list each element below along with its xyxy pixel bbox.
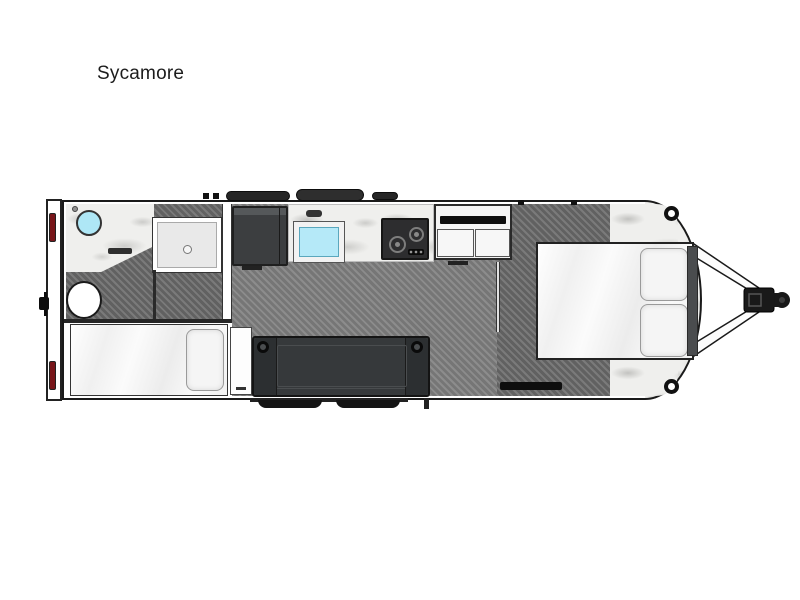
a-frame-hitch [688, 238, 798, 362]
roof-mark-icon [213, 193, 219, 199]
roof-vent [226, 191, 290, 201]
pillow [186, 329, 224, 391]
shower-drain-icon [183, 245, 192, 254]
bedroom-partition-wall [496, 262, 500, 332]
cabinet-handle-icon [242, 266, 262, 270]
tv-icon [440, 216, 506, 224]
speaker-icon [664, 206, 679, 221]
kitchen-sink [299, 227, 339, 257]
sofa-front-line [277, 388, 405, 389]
media-cabinet [434, 204, 512, 260]
bed-step-rail [500, 382, 562, 390]
tail-light-top [49, 213, 56, 242]
wardrobe-cabinet [232, 206, 288, 266]
cooktop [381, 218, 429, 260]
hinge-mark-icon [571, 200, 577, 205]
floor-register-icon [108, 248, 132, 254]
headboard [687, 246, 698, 356]
sofa [252, 336, 430, 397]
round-sink [76, 210, 102, 236]
entry-step [258, 400, 322, 408]
floorplan-title: Sycamore [97, 63, 184, 85]
burner-center-icon [395, 242, 400, 247]
pillow [640, 304, 688, 357]
roof-vent [372, 192, 398, 200]
burner-icon [389, 236, 406, 253]
nightstand [230, 327, 252, 395]
burner-center-icon [414, 232, 419, 237]
cabinet-handle-icon [448, 261, 468, 265]
toilet [66, 281, 102, 319]
cupholder-icon [411, 341, 423, 353]
rear-hook-icon [39, 297, 49, 310]
sofa-seat [277, 345, 407, 387]
cooktop-knobs-icon [408, 249, 424, 255]
nightstand-handle-icon [236, 387, 246, 390]
bathroom-rear-wall [64, 319, 232, 323]
roof-vent [296, 189, 364, 201]
burner-icon [409, 227, 424, 242]
cupholder-icon [257, 341, 269, 353]
entry-step [336, 400, 400, 408]
step-latch-icon [424, 398, 429, 409]
pillow [640, 248, 688, 301]
roof-mark-icon [203, 193, 209, 199]
cabinet-panel [475, 229, 510, 257]
hinge-mark-icon [518, 200, 524, 205]
speaker-icon [664, 379, 679, 394]
tail-light-bottom [49, 361, 56, 390]
floorplan-canvas: Sycamore [0, 0, 800, 600]
kitchen-faucet-icon [306, 210, 322, 217]
cabinet-door-split [279, 208, 280, 264]
cabinet-panel [437, 229, 474, 257]
toilet-room-wall [153, 270, 156, 320]
vanity-faucet-icon [72, 206, 78, 212]
bathroom-divider-wall [222, 204, 232, 322]
